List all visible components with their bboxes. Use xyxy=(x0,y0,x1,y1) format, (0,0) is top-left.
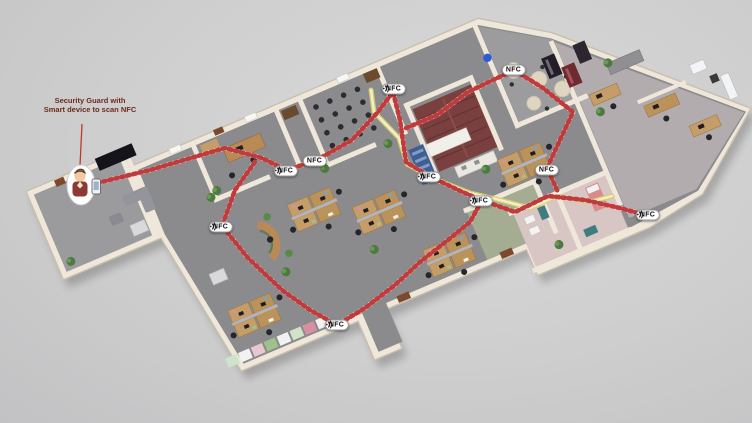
nfc-checkpoint: NFC xyxy=(417,172,441,183)
contactless-icon xyxy=(637,211,645,219)
nfc-label: NFC xyxy=(506,67,521,74)
annotation-line1: Security Guard with xyxy=(28,96,152,105)
nfc-checkpoint: NFC xyxy=(303,156,327,167)
contactless-icon xyxy=(326,321,334,329)
nfc-label: NFC xyxy=(539,167,554,174)
nfc-label: NFC xyxy=(307,158,322,165)
nfc-checkpoint: NFC xyxy=(382,84,406,95)
nfc-checkpoint: NFC xyxy=(209,222,233,233)
nfc-checkpoint: NFC xyxy=(325,320,349,331)
contactless-icon xyxy=(470,197,478,205)
office-floorplan-scene: Security Guard with Smart device to scan… xyxy=(0,0,752,423)
nfc-checkpoint: NFC xyxy=(636,210,660,221)
annotation-line2: Smart device to scan NFC xyxy=(28,105,152,114)
contactless-icon xyxy=(383,85,391,93)
contactless-icon xyxy=(275,167,283,175)
nfc-checkpoint: NFC xyxy=(502,65,526,76)
annotation-leader-line xyxy=(80,124,82,166)
security-guard-annotation: Security Guard with Smart device to scan… xyxy=(28,96,152,114)
nfc-checkpoint: NFC xyxy=(535,165,559,176)
nfc-checkpoint: NFC xyxy=(469,196,493,207)
contactless-icon xyxy=(418,173,426,181)
contactless-icon xyxy=(210,223,218,231)
nfc-checkpoint: NFC xyxy=(274,166,298,177)
